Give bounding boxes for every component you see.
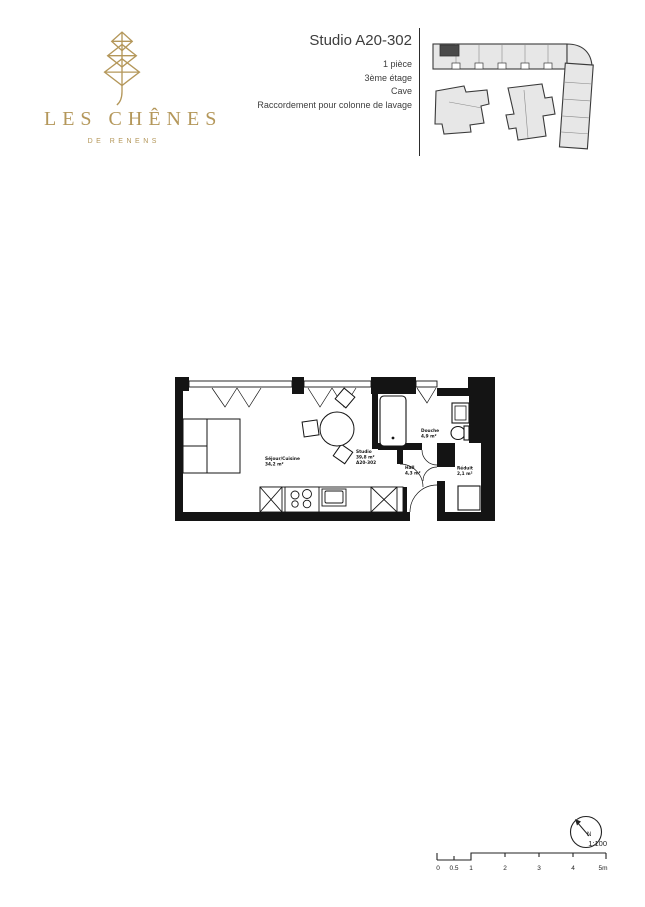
unit-title: Studio A20-302 [150,32,412,49]
scale-tick: 3 [537,865,541,872]
room-code-studio: A20-302 [356,460,376,466]
unit-detail-floor: 3ème étage [150,72,412,86]
site-building-b [506,84,555,140]
scale-ratio: 1:100 [588,839,607,848]
chair-icon [335,388,355,408]
bed-icon [183,419,240,473]
room-label-hall: Hall [405,465,415,471]
room-area-douche: 4,9 m² [421,434,437,440]
scale-tick: 1 [469,865,473,872]
scale-bar-line [437,853,606,860]
unit-detail-laundry: Raccordement pour colonne de lavage [150,99,412,113]
scale-bar: 1:100 0 0.5 1 2 3 4 5m [436,837,612,877]
stove-icon [285,487,319,512]
room-label-reduit: Réduit [457,465,473,472]
unit-detail-cellar: Cave [150,85,412,99]
logo-subtitle: DE RENENS [38,138,206,145]
room-area-reduit: 2,1 m² [457,471,473,477]
window [304,381,371,387]
site-key-plan [424,28,642,158]
site-building-a [435,86,489,134]
room-area-hall: 4,3 m² [405,471,421,477]
door-arc-reduit [423,467,437,481]
table-icon [320,412,354,446]
site-plan-highlighted-unit [440,45,459,56]
header-divider [419,28,420,156]
window [189,381,292,387]
room-label-sejour: Séjour/Cuisine [265,455,300,462]
toilet-icon [451,427,465,440]
scale-tick: 0.5 [449,865,458,872]
scale-tick: 2 [503,865,507,872]
scale-tick: 4 [571,865,575,872]
scale-tick: 5m [598,865,607,872]
unit-detail-rooms: 1 pièce [150,58,412,72]
chair-icon [302,420,319,437]
floor-plan: Séjour/Cuisine 34,2 m² Studio 39,8 m² A2… [175,377,495,525]
door-arc-douche [422,450,437,465]
room-label-studio: Studio [356,449,372,455]
unit-info-block: Studio A20-302 1 pièce 3ème étage Cave R… [150,32,412,112]
site-building-wing [559,63,593,149]
tree-leaf-icon [91,28,153,106]
window [416,381,437,387]
room-area-studio: 39,8 m² [356,455,375,461]
page: LES CHÊNES DE RENENS Studio A20-302 1 pi… [0,0,645,907]
chair-icon [333,444,352,463]
room-area-sejour: 34,2 m² [265,462,284,468]
toilet-tank [464,426,469,440]
room-label-douche: Douche [421,428,439,434]
door-arc-entry [410,485,437,512]
scale-tick: 0 [436,865,440,872]
shelf-icon [458,486,480,510]
